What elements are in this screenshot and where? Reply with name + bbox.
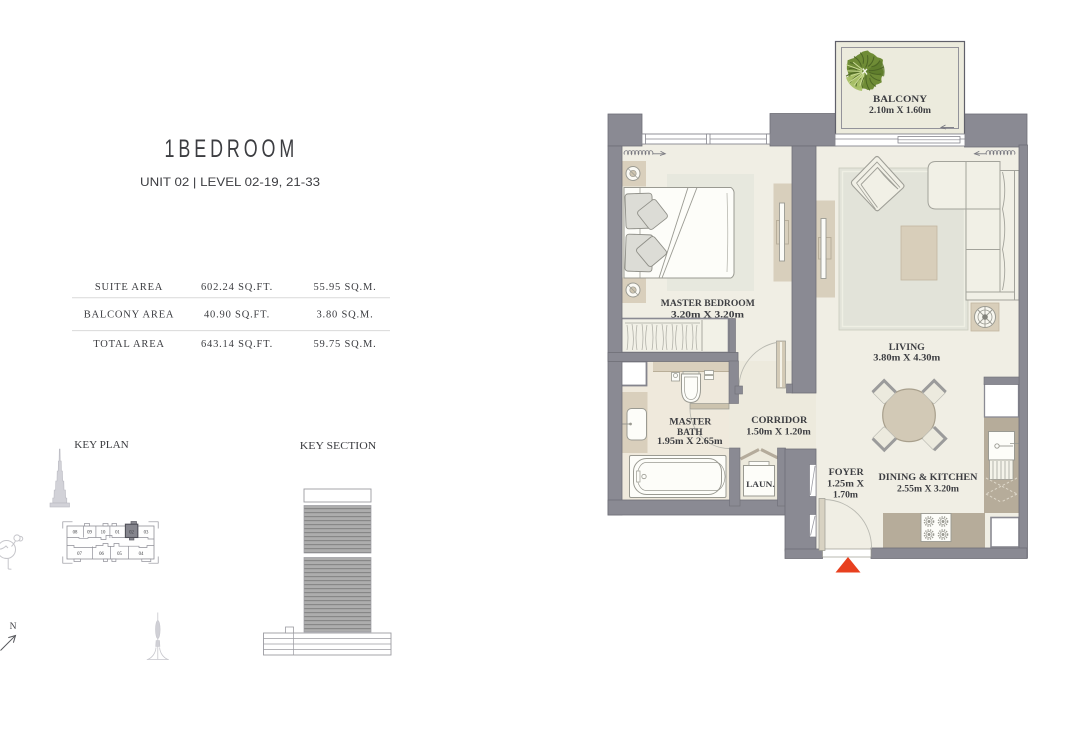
svg-text:BALCONY: BALCONY	[873, 94, 927, 105]
svg-text:3.80 SQ.M.: 3.80 SQ.M.	[316, 310, 373, 321]
svg-text:07: 07	[77, 552, 82, 557]
svg-text:LIVING: LIVING	[889, 342, 926, 353]
svg-text:UNIT 02 | LEVEL 02-19, 21-33: UNIT 02 | LEVEL 02-19, 21-33	[140, 175, 320, 189]
svg-text:CORRIDOR: CORRIDOR	[751, 415, 808, 426]
svg-text:40.90 SQ.FT.: 40.90 SQ.FT.	[204, 310, 270, 321]
svg-text:KEY SECTION: KEY SECTION	[300, 441, 377, 452]
svg-text:MASTER: MASTER	[669, 417, 712, 428]
svg-text:1.95m X 2.65m: 1.95m X 2.65m	[657, 436, 723, 446]
svg-text:05: 05	[117, 552, 122, 557]
svg-text:06: 06	[99, 552, 104, 557]
svg-text:2.10m X 1.60m: 2.10m X 1.60m	[869, 105, 931, 116]
svg-text:LAUN.: LAUN.	[746, 479, 775, 489]
svg-text:3.20m X 3.20m: 3.20m X 3.20m	[671, 310, 744, 321]
svg-text:1.25m X: 1.25m X	[827, 479, 864, 490]
svg-text:2.55m X 3.20m: 2.55m X 3.20m	[897, 484, 959, 495]
svg-text:01: 01	[115, 531, 120, 536]
svg-text:3.80m X 4.30m: 3.80m X 4.30m	[873, 353, 940, 364]
svg-text:03: 03	[144, 531, 149, 536]
svg-text:BALCONY AREA: BALCONY AREA	[84, 310, 175, 321]
svg-text:59.75 SQ.M.: 59.75 SQ.M.	[313, 339, 376, 350]
svg-text:N: N	[10, 622, 17, 632]
svg-text:55.95 SQ.M.: 55.95 SQ.M.	[313, 282, 376, 293]
svg-text:KEY PLAN: KEY PLAN	[74, 440, 129, 451]
svg-text:04: 04	[139, 552, 144, 557]
svg-text:MASTER BEDROOM: MASTER BEDROOM	[661, 298, 755, 309]
svg-text:602.24 SQ.FT.: 602.24 SQ.FT.	[201, 282, 273, 293]
svg-text:DINING & KITCHEN: DINING & KITCHEN	[879, 472, 978, 483]
svg-text:1.70m: 1.70m	[833, 490, 858, 501]
svg-text:1.50m X 1.20m: 1.50m X 1.20m	[746, 427, 811, 438]
svg-text:FOYER: FOYER	[829, 467, 865, 478]
svg-text:1BEDROOM: 1BEDROOM	[165, 134, 299, 163]
svg-text:TOTAL AREA: TOTAL AREA	[93, 339, 165, 350]
svg-text:08: 08	[73, 531, 78, 536]
svg-text:10: 10	[101, 531, 106, 536]
svg-text:643.14 SQ.FT.: 643.14 SQ.FT.	[201, 339, 273, 350]
svg-text:02: 02	[129, 531, 134, 536]
svg-text:SUITE AREA: SUITE AREA	[95, 282, 163, 293]
svg-text:09: 09	[87, 531, 92, 536]
